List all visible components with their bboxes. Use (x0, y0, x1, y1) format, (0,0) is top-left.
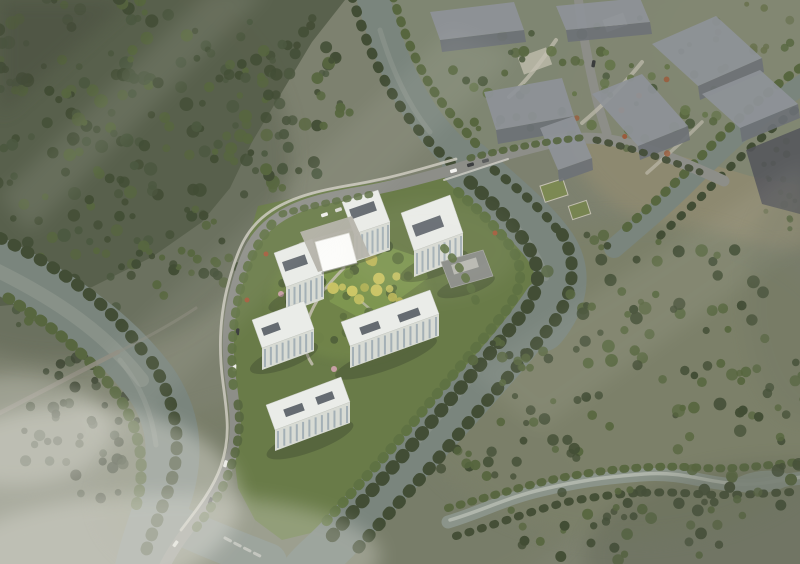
forest-scatter-2 (240, 154, 253, 167)
forest-scatter-5 (127, 271, 136, 280)
forest-scatter-4 (270, 68, 282, 80)
forest-scatter-1 (141, 32, 154, 45)
field-grove-2 (673, 444, 683, 454)
field-grove-4 (536, 537, 545, 546)
forest-scatter-3 (47, 232, 58, 243)
field-grove-4 (557, 488, 566, 497)
context-trees (572, 91, 577, 96)
field-grove-1 (718, 303, 728, 313)
bottomleft-woods (56, 359, 66, 369)
field-grove-6 (436, 464, 446, 474)
context-trees (501, 70, 508, 77)
forest-scatter-4 (312, 72, 324, 84)
forest-scatter-2 (225, 142, 237, 154)
field-grove-5 (490, 340, 496, 346)
field-grove-1 (725, 326, 732, 333)
forest-scatter-4 (274, 98, 285, 109)
forest-scatter-2 (144, 162, 157, 175)
context-trees (519, 46, 530, 57)
forest-scatter-1 (148, 111, 155, 118)
topright-shrubs (744, 2, 749, 7)
field-grove-1 (703, 327, 710, 334)
field-grove-1 (541, 265, 553, 277)
forest-scatter-4 (278, 40, 287, 49)
forest-scatter-5 (169, 260, 177, 268)
forest-scatter-4 (242, 119, 252, 129)
bottomleft-woods (43, 368, 50, 375)
forest-scatter-3 (130, 161, 139, 170)
forest-scatter-4 (293, 42, 301, 50)
forest-scatter-4 (258, 45, 270, 57)
field-grove-6 (461, 458, 471, 468)
forest-scatter-1 (76, 63, 83, 70)
forest-scatter-2 (93, 166, 102, 175)
forest-scatter-2 (204, 82, 214, 92)
site-trees (340, 313, 347, 320)
forest-scatter-1 (127, 56, 134, 63)
field-grove-3 (523, 420, 529, 426)
forest-scatter-2 (316, 91, 325, 100)
forest-scatter-3 (68, 209, 80, 221)
forest-scatter-1 (145, 14, 158, 27)
field-grove-1 (598, 230, 609, 241)
field-grove-1 (595, 254, 607, 266)
forest-scatter-4 (346, 108, 354, 116)
forest-scatter-5 (192, 206, 200, 214)
forest-scatter-3 (114, 189, 123, 198)
forest-scatter-4 (243, 133, 254, 144)
context-trees (559, 59, 567, 67)
context-trees (648, 72, 656, 80)
forest-scatter-5 (218, 238, 225, 245)
site-trees (313, 332, 324, 343)
forest-scatter-1 (142, 9, 148, 15)
forest-scatter-3 (129, 213, 135, 219)
forest-scatter-4 (247, 19, 253, 25)
field-grove-2 (737, 377, 745, 385)
context-trees (629, 63, 634, 68)
forest-scatter-4 (263, 90, 274, 101)
field-grove-2 (726, 369, 738, 381)
field-grove-6 (482, 471, 492, 481)
forest-scatter-4 (320, 122, 328, 130)
forest-scatter-2 (184, 150, 194, 160)
context-trees (528, 30, 535, 37)
forest-scatter-1 (134, 15, 141, 22)
forest-scatter-4 (287, 115, 297, 125)
forest-scatter-3 (86, 238, 93, 245)
context-trees (519, 56, 525, 62)
forest-scatter-3 (102, 249, 111, 258)
forest-scatter-2 (237, 92, 244, 99)
field-grove-3 (595, 391, 603, 399)
forest-scatter-3 (75, 226, 83, 234)
forest-scatter-4 (257, 73, 265, 81)
context-trees (709, 117, 717, 125)
forest-scatter-5 (152, 280, 161, 289)
leftfield-shrubs (16, 322, 21, 327)
topright-shrubs (761, 47, 768, 54)
field-grove-2 (714, 398, 727, 411)
forest-scatter-5 (187, 249, 195, 257)
forest-scatter-4 (224, 69, 235, 80)
field-grove-6 (512, 457, 522, 467)
forest-scatter-5 (211, 219, 217, 225)
field-grove-1 (604, 242, 612, 250)
forest-scatter-2 (164, 121, 174, 131)
forest-scatter-2 (222, 131, 231, 140)
courtyard-yellow-trees (339, 284, 346, 291)
field-grove-5 (468, 355, 479, 366)
forest-scatter-3 (85, 195, 94, 204)
courtyard-yellow-trees (347, 286, 358, 297)
field-grove-1 (589, 235, 599, 245)
forest-scatter-1 (180, 97, 194, 111)
forest-scatter-5 (193, 255, 202, 264)
forest-scatter-5 (165, 230, 174, 239)
forest-scatter-5 (146, 248, 153, 255)
forest-scatter-1 (61, 88, 71, 98)
field-grove-6 (491, 471, 498, 478)
forest-scatter-3 (121, 198, 128, 205)
forest-scatter-3 (28, 133, 35, 140)
field-grove-1 (598, 244, 604, 250)
forest-scatter-4 (328, 57, 335, 64)
field-grove-3 (520, 437, 528, 445)
forest-scatter-2 (260, 163, 272, 175)
forest-scatter-2 (159, 112, 170, 123)
courtyard-yellow-trees (354, 294, 364, 304)
forest-scatter-3 (93, 220, 102, 229)
forest-scatter-3 (93, 247, 100, 254)
topright-shrubs (760, 4, 768, 12)
forest-scatter-4 (320, 41, 332, 53)
field-grove-6 (470, 460, 480, 470)
forest-scatter-5 (131, 259, 141, 269)
forest-scatter-4 (269, 57, 276, 64)
context-trees (605, 60, 616, 71)
courtyard-yellow-trees (327, 282, 339, 294)
field-grove-6 (454, 447, 463, 456)
field-grove-2 (736, 370, 743, 377)
forest-scatter-2 (199, 145, 211, 157)
forest-scatter-4 (237, 59, 247, 69)
forest-scatter-1 (55, 96, 62, 103)
field-grove-1 (655, 239, 661, 245)
field-grove-4 (519, 523, 527, 531)
field-grove-2 (672, 404, 685, 417)
field-grove-2 (685, 432, 694, 441)
field-grove-1 (633, 256, 641, 264)
field-grove-2 (776, 433, 785, 442)
context-trees (546, 46, 557, 57)
forest-scatter-1 (44, 86, 54, 96)
context-trees (603, 50, 609, 56)
field-grove-1 (584, 232, 591, 239)
forest-scatter-3 (124, 186, 137, 199)
field-grove-2 (688, 402, 700, 414)
aerial-site-plan-render (0, 0, 800, 564)
field-grove-4 (508, 507, 515, 514)
field-grove-3 (547, 434, 559, 446)
forest-scatter-2 (226, 100, 239, 113)
forest-scatter-2 (261, 129, 273, 141)
field-grove-2 (754, 412, 764, 422)
forest-scatter-5 (159, 291, 168, 300)
field-grove-4 (560, 521, 570, 531)
topright-shrubs (785, 16, 794, 25)
field-grove-1 (680, 366, 689, 375)
field-grove-2 (716, 359, 725, 368)
field-grove-1 (703, 361, 713, 371)
field-grove-3 (497, 418, 506, 427)
forest-scatter-4 (275, 132, 283, 140)
context-trees (571, 56, 581, 66)
forest-scatter-2 (213, 140, 222, 149)
context-accent-trees (664, 150, 670, 156)
topright-shrubs (786, 39, 794, 47)
field-grove-4 (582, 509, 593, 520)
forest-scatter-2 (252, 167, 259, 174)
field-grove-3 (587, 410, 597, 420)
field-grove-4 (518, 541, 527, 550)
context-accent-trees (664, 77, 670, 83)
context-trees (476, 126, 482, 132)
field-grove-5 (499, 340, 506, 347)
forest-scatter-5 (199, 211, 209, 221)
forest-scatter-3 (107, 273, 115, 281)
forest-scatter-2 (199, 100, 206, 107)
forest-scatter-1 (79, 77, 90, 88)
forest-scatter-4 (261, 150, 268, 157)
field-grove-3 (572, 454, 580, 462)
forest-scatter-4 (308, 14, 316, 22)
context-accent-trees (622, 134, 627, 139)
forest-scatter-2 (278, 163, 288, 173)
forest-scatter-3 (42, 117, 53, 128)
forest-scatter-4 (232, 122, 239, 129)
field-grove-4 (555, 551, 566, 562)
forest-scatter-4 (336, 103, 346, 113)
context-trees (664, 64, 670, 70)
forest-scatter-3 (111, 224, 123, 236)
field-grove-3 (552, 446, 559, 453)
forest-scatter-4 (236, 32, 245, 41)
field-grove-2 (691, 372, 699, 380)
forest-scatter-5 (202, 221, 211, 230)
light-center (340, 200, 520, 300)
field-grove-4 (615, 488, 622, 495)
forest-scatter-3 (70, 249, 81, 260)
field-grove-3 (605, 422, 614, 431)
forest-scatter-5 (178, 247, 186, 255)
field-grove-1 (565, 289, 575, 299)
field-grove-3 (562, 435, 572, 445)
forest-scatter-4 (225, 60, 235, 70)
forest-scatter-3 (104, 236, 111, 243)
forest-scatter-4 (299, 118, 312, 131)
field-grove-6 (483, 457, 494, 468)
forest-scatter-2 (139, 140, 150, 151)
forest-scatter-4 (290, 48, 301, 59)
forest-scatter-5 (118, 263, 125, 270)
forest-scatter-2 (191, 121, 202, 132)
forest-scatter-2 (283, 142, 294, 153)
field-grove-6 (486, 447, 496, 457)
context-trees (586, 120, 596, 130)
context-trees (702, 112, 708, 118)
forest-scatter-2 (212, 149, 218, 155)
forest-scatter-4 (215, 75, 223, 83)
forest-scatter-2 (193, 183, 207, 197)
field-grove-2 (697, 377, 707, 387)
forest-scatter-4 (306, 21, 315, 30)
context-trees (680, 105, 690, 115)
forest-scatter-2 (261, 112, 272, 123)
field-grove-1 (658, 375, 667, 384)
forest-scatter-3 (57, 229, 70, 242)
forest-scatter-1 (127, 45, 137, 55)
context-trees (470, 118, 479, 127)
forest-scatter-2 (105, 174, 115, 184)
forest-scatter-4 (284, 68, 296, 80)
field-grove-2 (738, 406, 748, 416)
forest-scatter-5 (136, 250, 143, 257)
forest-scatter-2 (117, 176, 125, 184)
render-canvas (0, 0, 800, 564)
field-grove-3 (569, 443, 580, 454)
blossom-6 (331, 366, 337, 372)
forest-scatter-4 (240, 73, 250, 83)
forest-scatter-2 (162, 144, 170, 152)
field-grove-6 (510, 473, 516, 479)
forest-scatter-5 (159, 255, 165, 261)
field-grove-2 (734, 425, 746, 437)
forest-scatter-2 (210, 155, 219, 164)
forest-scatter-3 (147, 185, 158, 196)
field-grove-6 (465, 451, 472, 458)
forest-scatter-3 (10, 215, 17, 222)
forest-scatter-3 (10, 172, 18, 180)
forest-scatter-3 (114, 211, 125, 222)
field-grove-4 (626, 486, 633, 493)
forest-scatter-1 (175, 81, 187, 93)
forest-scatter-1 (162, 9, 174, 21)
forest-scatter-2 (240, 190, 248, 198)
forest-scatter-1 (108, 50, 114, 56)
site-trees (330, 336, 338, 344)
